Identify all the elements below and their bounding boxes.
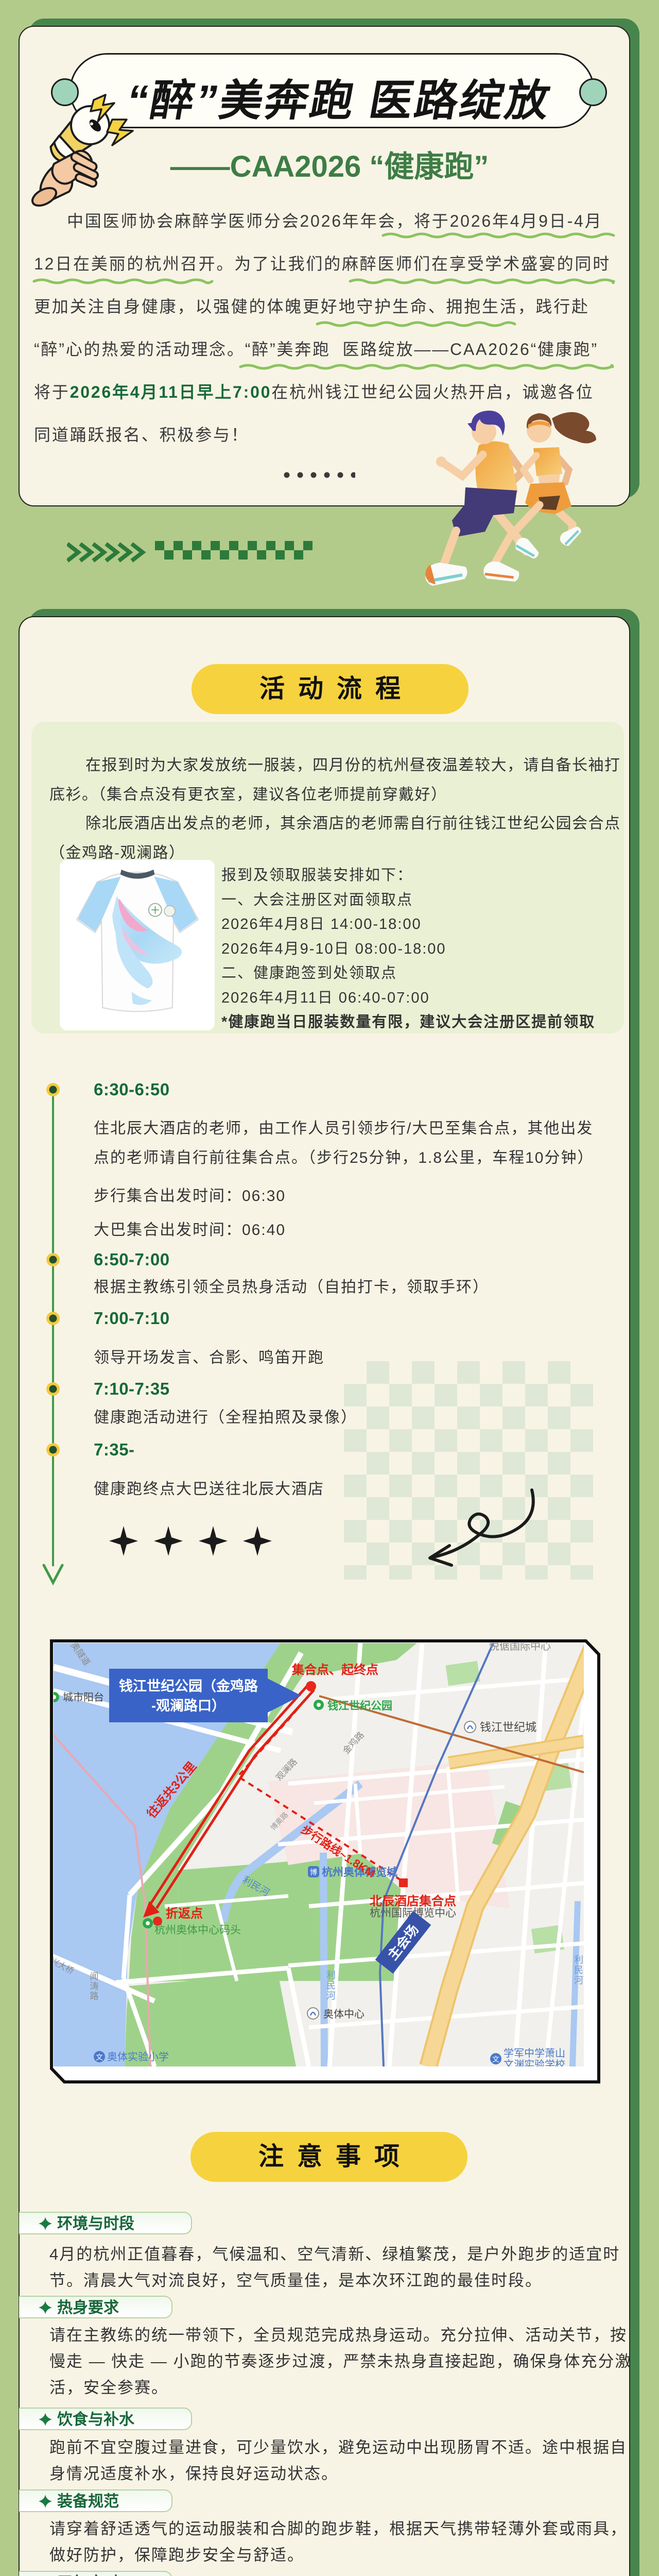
svg-text:钱江世纪公园: 钱江世纪公园: [327, 1700, 392, 1712]
svg-text:利: 利: [574, 1955, 583, 1965]
svg-text:钱江世纪公园（金鸡路: 钱江世纪公园（金鸡路: [119, 1678, 258, 1694]
svg-text:钱江世纪城: 钱江世纪城: [480, 1721, 536, 1734]
svg-text:北辰酒店集合点: 北辰酒店集合点: [370, 1894, 456, 1908]
svg-text:民: 民: [326, 1980, 336, 1991]
svg-text:利: 利: [326, 1970, 336, 1980]
svg-text:杭州奥体中心码头: 杭州奥体中心码头: [154, 1924, 241, 1936]
svg-text:文: 文: [492, 2055, 499, 2063]
svg-text:奥体实验小学: 奥体实验小学: [107, 2051, 169, 2063]
svg-text:河: 河: [574, 1975, 583, 1986]
svg-text:路: 路: [90, 1991, 99, 2001]
svg-text:学军中学萧山: 学军中学萧山: [504, 2047, 565, 2059]
svg-text:民: 民: [574, 1965, 583, 1975]
svg-text:集合点、起终点: 集合点、起终点: [291, 1663, 378, 1677]
svg-text:涛: 涛: [90, 1981, 99, 1991]
svg-text:奥体中心: 奥体中心: [323, 2008, 365, 2020]
svg-text:河: 河: [326, 1991, 336, 2001]
svg-text:-观澜路口）: -观澜路口）: [151, 1698, 226, 1714]
svg-text:闻: 闻: [90, 1972, 99, 1981]
svg-text:文: 文: [96, 2053, 103, 2061]
svg-text:博: 博: [310, 1868, 317, 1876]
svg-text:城市阳台: 城市阳台: [63, 1691, 104, 1703]
svg-text:折返点: 折返点: [166, 1907, 203, 1921]
